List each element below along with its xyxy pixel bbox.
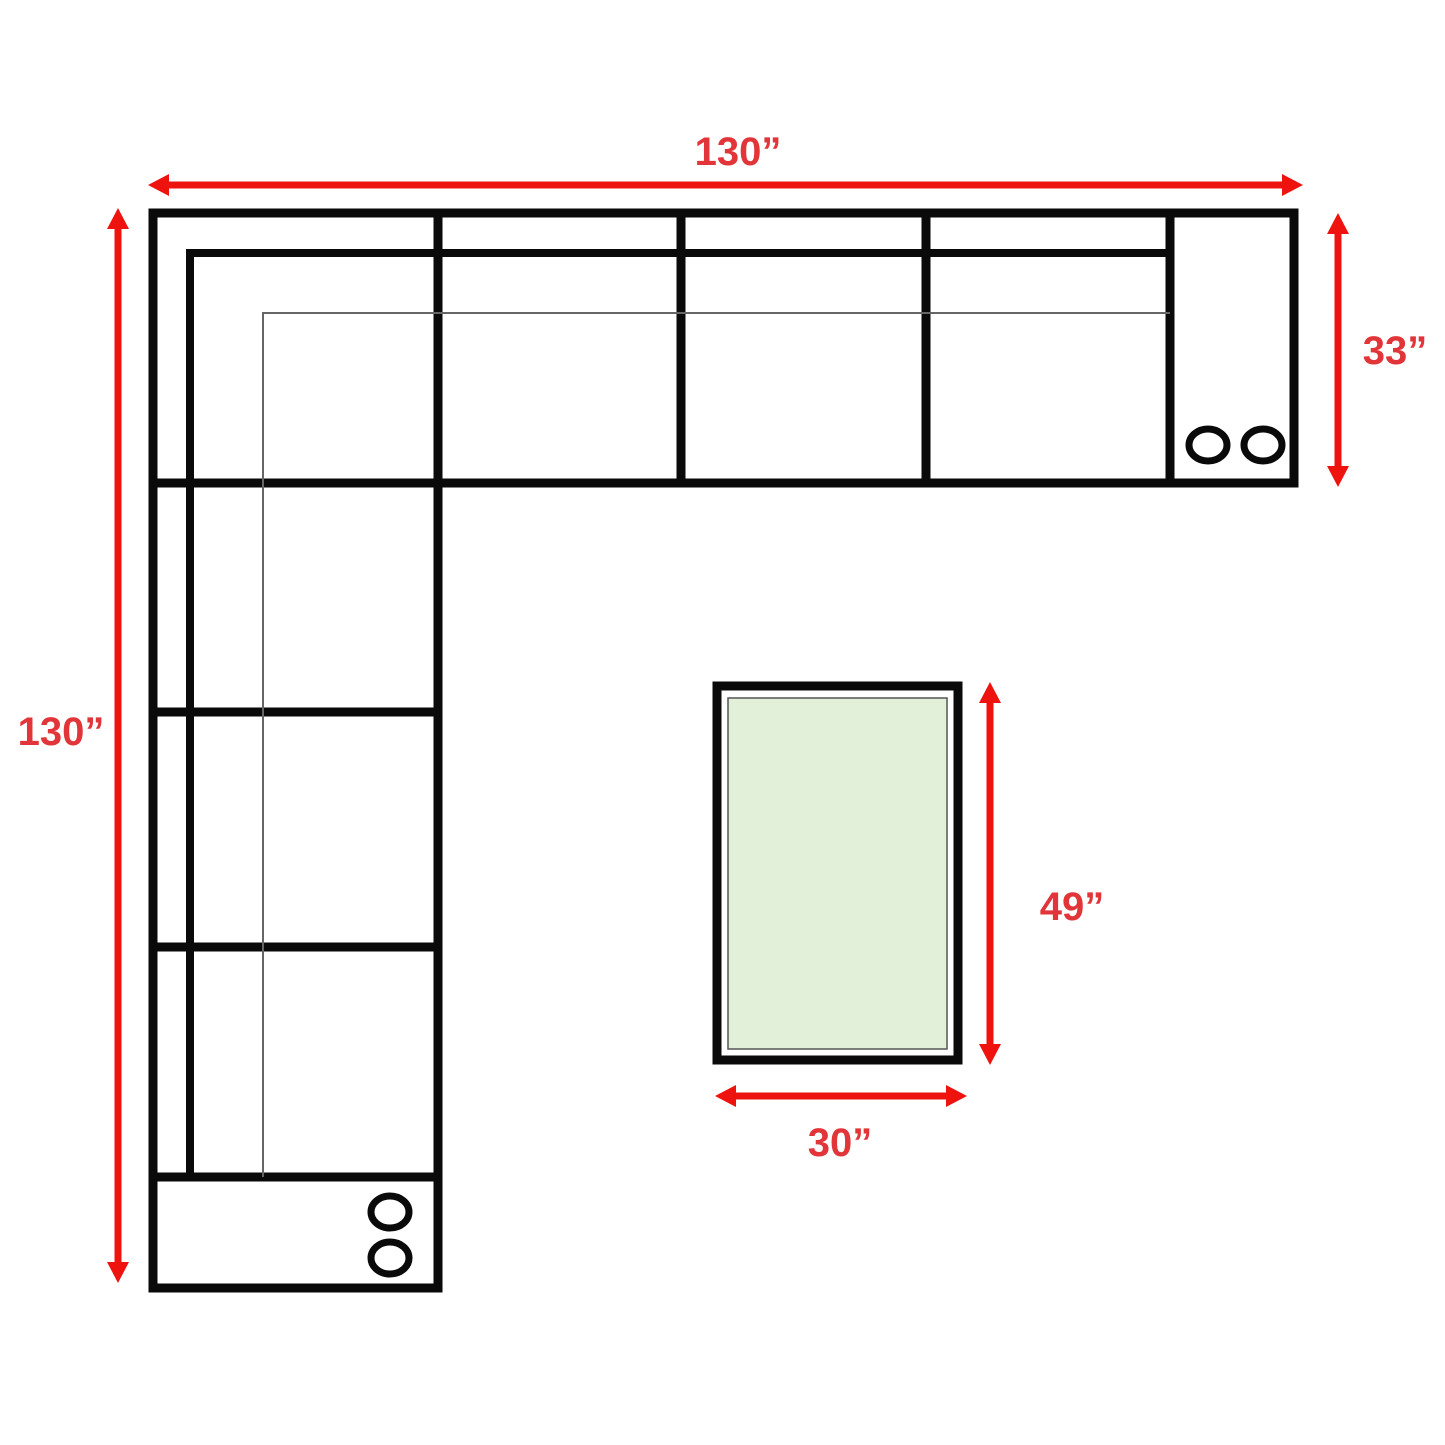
table-top-surface <box>728 698 947 1049</box>
arrow-head-right <box>946 1085 967 1107</box>
dimension-label-sofa-width: 130” <box>695 130 782 174</box>
cupholder-icon <box>371 1196 409 1228</box>
arrow-head-top <box>107 208 129 229</box>
dimension-arrow-table-width <box>715 1085 967 1107</box>
cupholder-icon <box>1189 429 1227 461</box>
top-console-cupholders <box>1189 429 1282 461</box>
table <box>717 686 958 1060</box>
cupholder-icon <box>371 1242 409 1274</box>
arrow-head-bottom <box>107 1262 129 1283</box>
dimension-arrow-section-depth <box>1327 213 1349 487</box>
bottom-console-cupholders <box>371 1196 409 1274</box>
floor-plan-svg: 130” 130” 33” 49” 30” <box>0 0 1445 1445</box>
arrow-head-bottom <box>979 1044 1001 1065</box>
arrow-head-left <box>148 174 169 196</box>
arrow-head-top <box>1327 213 1349 234</box>
dimension-label-sofa-depth: 130” <box>18 710 105 754</box>
dimension-label-table-length: 49” <box>1040 885 1105 929</box>
dimension-arrow-sofa-width <box>148 174 1303 196</box>
arrow-head-left <box>715 1085 736 1107</box>
arrow-head-right <box>1282 174 1303 196</box>
dimension-arrow-sofa-depth <box>107 208 129 1283</box>
dimension-label-table-width: 30” <box>808 1121 873 1165</box>
cupholder-icon <box>1244 429 1282 461</box>
dimension-label-section-depth: 33” <box>1363 329 1428 373</box>
arrow-head-top <box>979 682 1001 703</box>
arrow-head-bottom <box>1327 466 1349 487</box>
dimension-arrow-table-length <box>979 682 1001 1065</box>
